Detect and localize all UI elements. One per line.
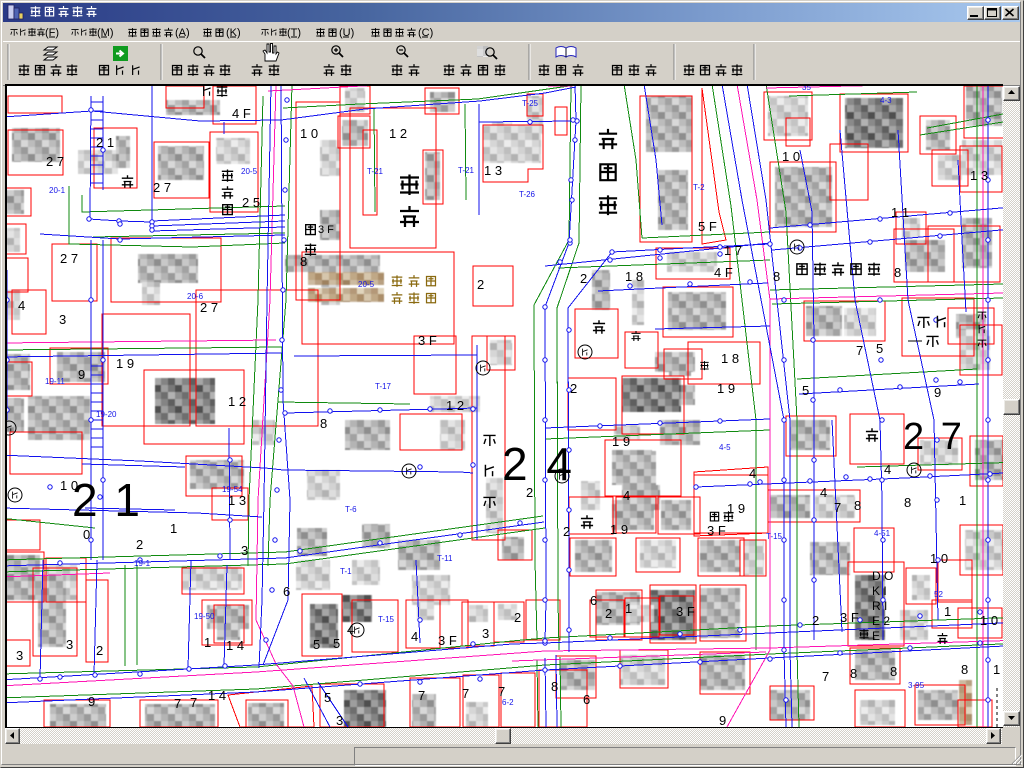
- svg-text:6: 6: [590, 593, 597, 608]
- svg-text:7: 7: [498, 684, 505, 699]
- svg-text:E 2: E 2: [872, 614, 890, 628]
- svg-text:1: 1: [993, 662, 1000, 677]
- svg-text:3: 3: [336, 713, 343, 728]
- svg-text:8: 8: [773, 269, 780, 284]
- svg-text:1 3: 1 3: [970, 168, 988, 183]
- svg-text:8: 8: [300, 254, 307, 269]
- svg-text:3 F: 3 F: [707, 523, 726, 538]
- svg-text:1 3: 1 3: [228, 493, 246, 508]
- svg-text:T-21: T-21: [458, 166, 475, 175]
- svg-text:4: 4: [411, 629, 418, 644]
- svg-text:7: 7: [822, 669, 829, 684]
- svg-text:1 7: 1 7: [724, 243, 742, 258]
- svg-text:1: 1: [944, 604, 951, 619]
- svg-text:3-95: 3-95: [908, 681, 925, 690]
- svg-text:1: 1: [170, 521, 177, 536]
- svg-text:4 F: 4 F: [714, 265, 733, 280]
- svg-text:1: 1: [959, 493, 966, 508]
- svg-text:T-15: T-15: [378, 615, 395, 624]
- svg-text:4 F: 4 F: [232, 106, 251, 121]
- svg-text:1 8: 1 8: [625, 269, 643, 284]
- svg-text:3 F: 3 F: [676, 604, 695, 619]
- svg-text:1 9: 1 9: [612, 434, 630, 449]
- svg-text:1 0: 1 0: [930, 551, 948, 566]
- svg-text:5 F: 5 F: [698, 219, 717, 234]
- svg-text:2: 2: [477, 277, 484, 292]
- svg-text:2 7: 2 7: [153, 180, 171, 195]
- svg-text:2 7: 2 7: [60, 251, 78, 266]
- svg-text:8: 8: [551, 679, 558, 694]
- svg-text:4: 4: [749, 466, 756, 481]
- svg-text:2 7: 2 7: [200, 300, 218, 315]
- svg-text:T-11: T-11: [437, 554, 453, 563]
- svg-text:1 0: 1 0: [980, 613, 998, 628]
- svg-text:2: 2: [812, 613, 819, 628]
- svg-text:3 F: 3 F: [840, 610, 859, 625]
- svg-text:4: 4: [820, 485, 827, 500]
- svg-text:20-5: 20-5: [241, 167, 258, 176]
- svg-text:7: 7: [174, 696, 181, 711]
- svg-text:6: 6: [583, 692, 590, 707]
- svg-text:2 5: 2 5: [242, 195, 260, 210]
- svg-text:4-3: 4-3: [880, 96, 892, 105]
- svg-text:35: 35: [802, 83, 811, 92]
- svg-text:20-1: 20-1: [49, 186, 66, 195]
- svg-text:3: 3: [241, 543, 248, 558]
- svg-text:5: 5: [324, 690, 331, 705]
- svg-text:1 2: 1 2: [228, 394, 246, 409]
- svg-text:6: 6: [283, 584, 290, 599]
- svg-text:1 9: 1 9: [717, 381, 735, 396]
- svg-text:1 4: 1 4: [226, 638, 244, 653]
- svg-text:7: 7: [418, 688, 425, 703]
- svg-text:20-6: 20-6: [187, 292, 204, 301]
- svg-text:4: 4: [884, 462, 891, 477]
- svg-text:4-5: 4-5: [719, 443, 731, 452]
- svg-text:8: 8: [854, 498, 861, 513]
- svg-text:3 F: 3 F: [438, 633, 457, 648]
- svg-text:T-25: T-25: [522, 99, 539, 108]
- svg-text:T-21: T-21: [367, 167, 384, 176]
- svg-text:R I: R I: [872, 599, 887, 613]
- svg-text:4-51: 4-51: [874, 529, 891, 538]
- svg-text:4: 4: [623, 488, 630, 503]
- svg-text:1 9: 1 9: [610, 522, 628, 537]
- svg-text:8: 8: [961, 662, 968, 677]
- svg-text:6-2: 6-2: [502, 698, 514, 707]
- svg-text:2: 2: [526, 485, 533, 500]
- svg-text:T-15: T-15: [766, 532, 783, 541]
- svg-text:1 2: 1 2: [389, 126, 407, 141]
- svg-text:2 1: 2 1: [96, 135, 114, 150]
- svg-text:1 2: 1 2: [446, 398, 464, 413]
- svg-text:5: 5: [333, 636, 340, 651]
- svg-text:19-11: 19-11: [45, 377, 65, 386]
- svg-text:3 F: 3 F: [418, 333, 437, 348]
- svg-text:0: 0: [83, 527, 90, 542]
- svg-text:19-1: 19-1: [134, 559, 151, 568]
- svg-text:E: E: [872, 629, 880, 643]
- svg-text:9: 9: [88, 694, 95, 709]
- svg-text:5: 5: [313, 637, 320, 652]
- svg-text:2: 2: [136, 537, 143, 552]
- svg-text:5: 5: [876, 341, 883, 356]
- svg-text:8: 8: [890, 664, 897, 679]
- svg-text:1 9: 1 9: [727, 501, 745, 516]
- svg-text:8: 8: [850, 666, 857, 681]
- svg-text:T-1: T-1: [340, 567, 352, 576]
- svg-text:8: 8: [894, 265, 901, 280]
- svg-text:2 1: 2 1: [72, 474, 142, 526]
- svg-text:7: 7: [190, 695, 197, 710]
- svg-text:K I: K I: [872, 584, 887, 598]
- svg-text:T-26: T-26: [519, 190, 536, 199]
- svg-text:2: 2: [563, 524, 570, 539]
- svg-text:1 8: 1 8: [721, 351, 739, 366]
- svg-text:9: 9: [719, 713, 726, 728]
- svg-text:3: 3: [66, 637, 73, 652]
- svg-text:1: 1: [625, 601, 632, 616]
- svg-text:7: 7: [462, 686, 469, 701]
- svg-text:8: 8: [320, 416, 327, 431]
- svg-text:1 3: 1 3: [484, 163, 502, 178]
- svg-text:2: 2: [514, 610, 521, 625]
- svg-text:2 7: 2 7: [903, 416, 965, 458]
- svg-text:3: 3: [59, 312, 66, 327]
- svg-text:T-2: T-2: [693, 183, 705, 192]
- svg-text:2: 2: [580, 271, 587, 286]
- svg-text:1 0: 1 0: [300, 126, 318, 141]
- svg-text:1 0: 1 0: [782, 149, 800, 164]
- svg-text:2: 2: [605, 606, 612, 621]
- svg-text:20-5: 20-5: [358, 280, 375, 289]
- svg-text:9: 9: [934, 385, 941, 400]
- svg-text:4: 4: [18, 298, 25, 313]
- svg-text:D O: D O: [872, 569, 893, 583]
- svg-text:7: 7: [834, 500, 841, 515]
- svg-text:T-17: T-17: [375, 382, 392, 391]
- svg-text:3: 3: [16, 648, 23, 663]
- svg-text:9: 9: [78, 367, 85, 382]
- svg-text:2 7: 2 7: [46, 154, 64, 169]
- svg-text:3: 3: [482, 626, 489, 641]
- svg-text:1 4: 1 4: [208, 688, 226, 703]
- svg-text:5: 5: [802, 383, 809, 398]
- svg-text:T-6: T-6: [345, 505, 357, 514]
- svg-text:1 1: 1 1: [891, 205, 909, 220]
- svg-text:2: 2: [570, 381, 577, 396]
- svg-text:19-54: 19-54: [222, 485, 243, 494]
- svg-text:1 0: 1 0: [60, 478, 78, 493]
- svg-text:1 9: 1 9: [116, 356, 134, 371]
- svg-text:19-50: 19-50: [194, 612, 215, 621]
- svg-text:1: 1: [204, 635, 211, 650]
- svg-text:8: 8: [904, 495, 911, 510]
- svg-text:2: 2: [96, 643, 103, 658]
- svg-text:52: 52: [934, 590, 943, 599]
- svg-text:t: t: [3, 317, 7, 332]
- svg-text:19-20: 19-20: [96, 410, 117, 419]
- svg-text:3 F: 3 F: [318, 224, 334, 236]
- svg-text:7: 7: [856, 343, 863, 358]
